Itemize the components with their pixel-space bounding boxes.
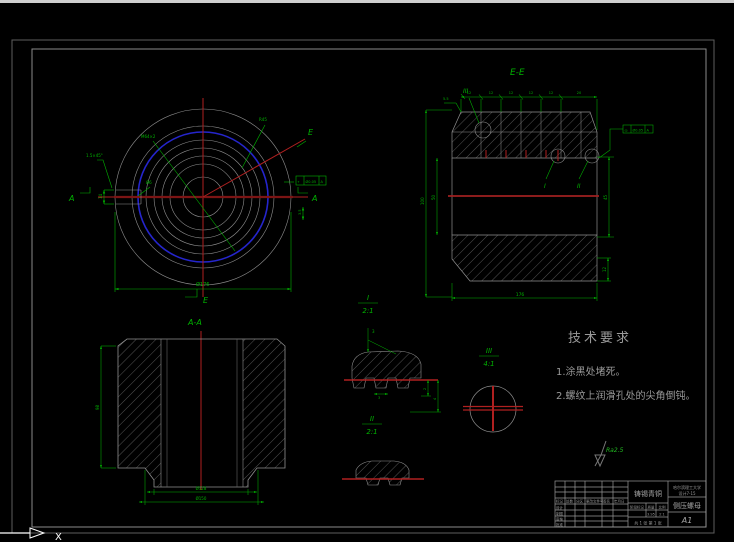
a-right-flag <box>298 187 308 193</box>
detail-i-dim-r2: 4 <box>433 397 437 400</box>
section-aa: A-A 98 Ø128 Ø150 <box>95 318 285 505</box>
detail-ii-label: II <box>370 415 374 423</box>
rev-label-zone: 分区 <box>576 499 584 504</box>
top-dim-2: 12 <box>489 91 493 95</box>
field-scale: 比例 <box>659 505 667 510</box>
detail-iii-label: III <box>486 347 492 355</box>
thread-label: M64×2 <box>141 134 156 139</box>
corner-dim-text: 5.5 <box>443 97 449 101</box>
roughness-check-icon <box>595 441 606 466</box>
height-dim-text: 100 <box>420 197 425 205</box>
aa-bore-lines <box>161 339 243 487</box>
ee-fcf-datum: A <box>647 129 650 133</box>
radius-label: R45 <box>259 117 267 122</box>
weight-value: 3.95 <box>647 513 655 517</box>
aa-hatch-right <box>243 339 285 487</box>
chamfer-label: 1.5×45° <box>86 153 103 158</box>
hole-leader <box>138 187 150 196</box>
chamfer-leader <box>97 160 112 188</box>
ucs-x-label: X <box>55 532 62 542</box>
detail-iii: III 4:1 <box>463 347 523 432</box>
staff-draw: 制图 <box>556 511 564 516</box>
band-dim-text: 50 <box>431 194 436 200</box>
upper-block <box>452 112 597 158</box>
label-e-top: E <box>308 128 314 137</box>
cad-drawing: E E A A 1.5×45° M64×2 R45 Ø6 14 3.5 Ø176… <box>0 0 734 542</box>
detail-ii: II 2:1 <box>342 415 424 485</box>
rev-label-docno: 更改文件号 <box>586 499 604 504</box>
a-left-flag <box>80 187 90 193</box>
rev-label-date: 年月日 <box>614 499 625 504</box>
section-ee: E-E <box>420 68 653 301</box>
label-a-right: A <box>311 194 317 203</box>
aa-outer-dim-text: Ø150 <box>196 496 207 501</box>
outer-border-frame <box>12 40 714 533</box>
top-dim-5: 12 <box>549 91 553 95</box>
detail-i-scale: 2:1 <box>362 307 373 315</box>
field-weight: 质量 <box>648 505 656 510</box>
aa-height-dim-text: 98 <box>95 404 100 410</box>
detail-iii-cross <box>463 386 523 431</box>
detail-i-label: I <box>367 294 369 302</box>
fcf-symbol: ⌖ <box>298 180 300 184</box>
detail-iii-callout: III <box>463 88 469 95</box>
material-name: 铸锡青铜 <box>634 489 662 498</box>
aa-hatch-left <box>118 339 161 487</box>
front-labels: E E A A 1.5×45° M64×2 R45 Ø6 14 3.5 Ø176… <box>68 117 324 305</box>
keyway-dim-text: 14 <box>98 193 103 199</box>
ee-fcf-leader <box>599 129 623 158</box>
tech-requirements: 技术要求 1.涂黑处堵死。 2.螺纹上润滑孔处的尖角倒钝。 <box>556 331 696 402</box>
detail-ii-profile <box>356 461 409 485</box>
detail-i-leader <box>546 161 554 179</box>
org-line2: 设计7-15 <box>678 490 696 496</box>
part-name: 侧压螺母 <box>673 501 701 510</box>
ee-fcf-symbol: ◎ <box>625 129 628 133</box>
detail-i-dim-top: 3 <box>372 329 375 334</box>
scale-value: 2:1 <box>659 513 665 517</box>
rev-label-count: 处数 <box>566 499 574 504</box>
roughness-symbol: Ra2.5 <box>595 441 624 466</box>
bottom-dim-text: 176 <box>516 292 525 298</box>
e-flag-line <box>297 141 306 147</box>
staff-approve: 批准 <box>556 522 564 527</box>
radius-leader <box>242 125 265 168</box>
top-dim-3: 12 <box>509 91 513 95</box>
top-dim-4: 12 <box>529 91 533 95</box>
side-dim-text: 3.5 <box>298 209 302 215</box>
right-lower-dim-text: 12 <box>602 266 607 272</box>
fcf-tolerance: Ø0.05 <box>306 179 317 184</box>
centerlines <box>98 98 308 297</box>
field-stage: 阶段标记 <box>630 505 644 510</box>
detail-iii-scale: 4:1 <box>483 360 494 368</box>
ee-fcf-tolerance: Ø0.05 <box>633 128 644 133</box>
cad-model-space[interactable]: E E A A 1.5×45° M64×2 R45 Ø6 14 3.5 Ø176… <box>0 0 734 542</box>
detail-ii-leader <box>579 161 588 179</box>
detail-ii-callout: II <box>577 183 581 190</box>
rev-label-mark: 标记 <box>556 499 564 504</box>
hole-label: Ø6 <box>146 180 152 185</box>
sheet-info: 共 1 张 第 1 张 <box>634 520 661 526</box>
org-line1: 哈尔滨理工大学 <box>673 484 701 490</box>
tech-req-note-1: 1.涂黑处堵死。 <box>556 365 626 378</box>
section-aa-title: A-A <box>187 318 202 327</box>
right-upper-dim-text: 45 <box>603 194 608 200</box>
e-bottom-flag <box>185 289 197 297</box>
detail-i-profile <box>352 351 421 388</box>
window-top-edge <box>0 0 734 3</box>
title-block: 标记 处数 分区 更改文件号 签名 年月日 设计 制图 审核 批准 阶段标记 质… <box>555 481 706 527</box>
staff-check: 审核 <box>556 517 564 522</box>
staff-design: 设计 <box>556 505 564 510</box>
detail-i-dim-r1: 2 <box>423 388 427 390</box>
label-a-left: A <box>68 194 74 203</box>
detail-ii-scale: 2:1 <box>366 428 377 436</box>
detail-i: I 2:1 3 3 2 4 <box>344 294 441 412</box>
roughness-value: Ra2.5 <box>606 447 624 454</box>
detail-i-dim-tooth: 3 <box>378 396 380 400</box>
detail-i-callout: I <box>544 183 546 190</box>
section-ee-title: E-E <box>510 68 525 78</box>
tech-req-heading: 技术要求 <box>568 331 632 346</box>
sheet-size: A1 <box>681 516 693 525</box>
width-dim-text: Ø176 <box>196 281 209 288</box>
rev-label-sign: 签名 <box>603 499 610 504</box>
fcf-datum: A <box>321 180 324 184</box>
top-dim-6: 20 <box>577 91 581 95</box>
tech-req-note-2: 2.螺纹上润滑孔处的尖角倒钝。 <box>556 389 696 402</box>
ucs-icon: X <box>0 528 62 542</box>
label-e-bottom: E <box>203 296 209 305</box>
lower-block <box>452 235 597 281</box>
aa-inner-dim-text: Ø128 <box>196 486 207 491</box>
front-view: E E A A 1.5×45° M64×2 R45 Ø6 14 3.5 Ø176… <box>68 98 326 305</box>
